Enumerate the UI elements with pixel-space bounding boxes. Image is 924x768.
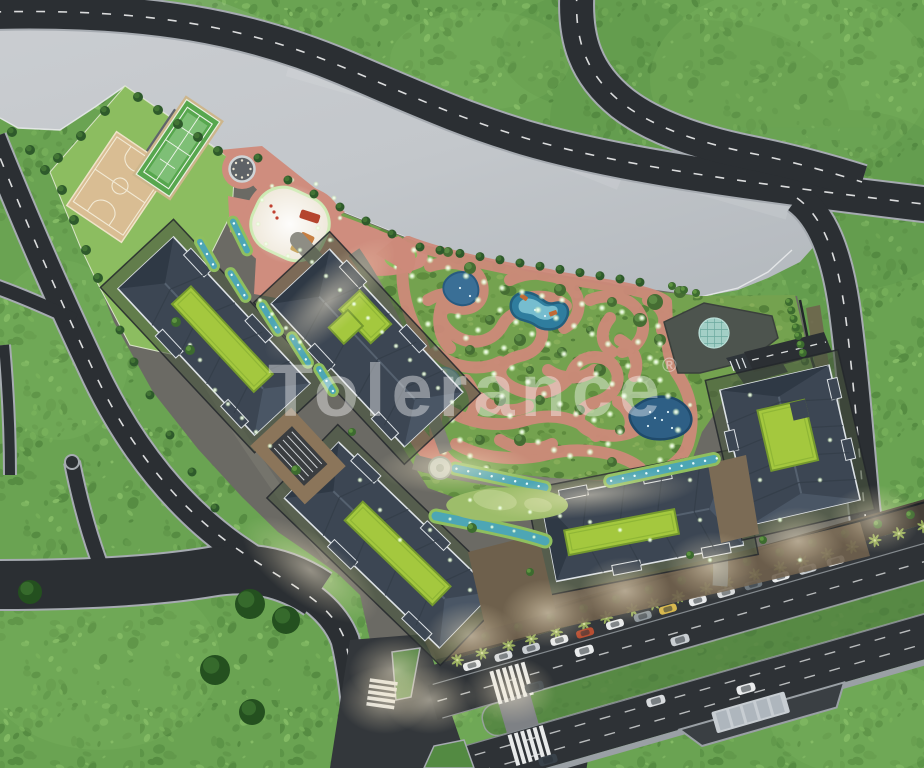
svg-text:Tolerance: Tolerance [268,349,660,432]
svg-text:®: ® [662,355,677,377]
